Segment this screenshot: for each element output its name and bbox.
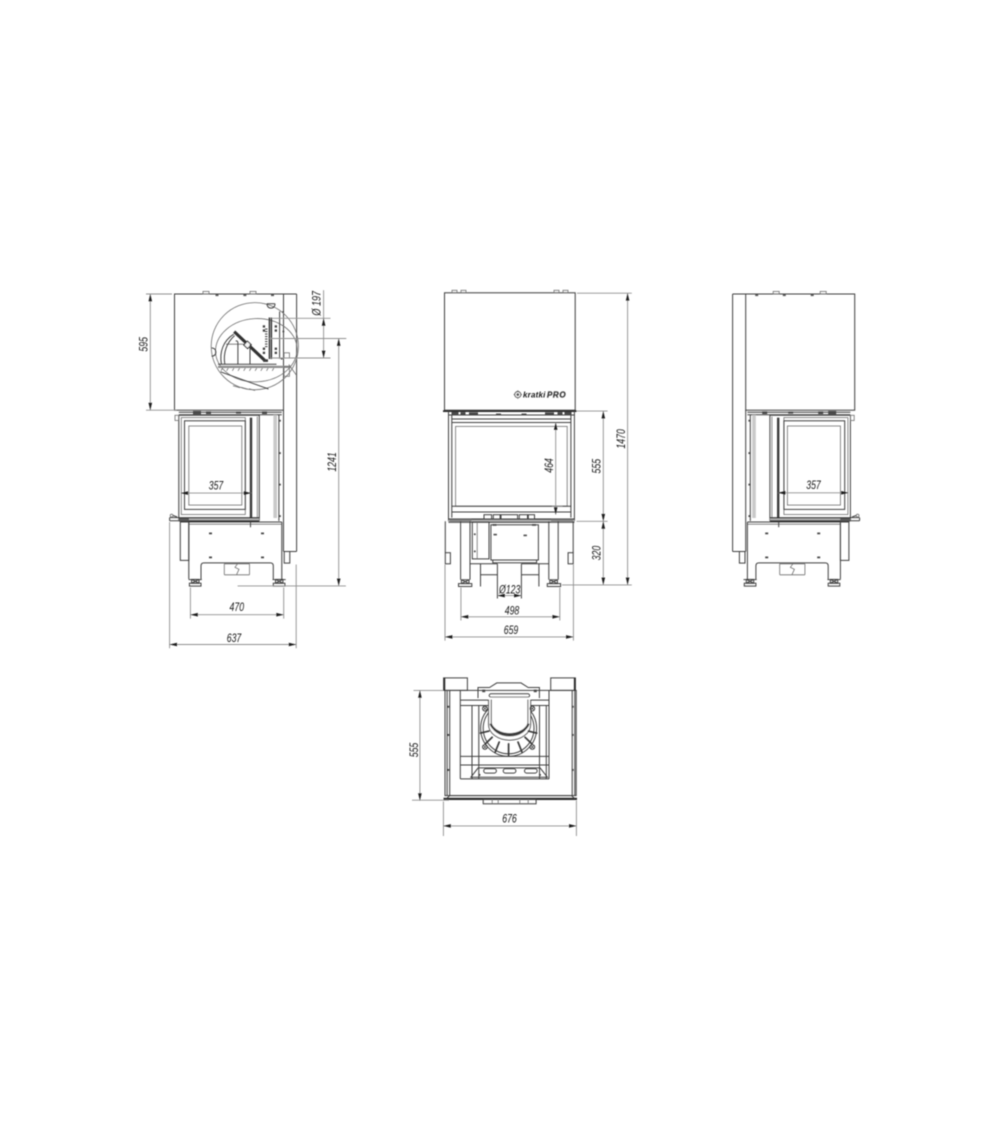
svg-text:555: 555: [591, 459, 604, 474]
svg-text:555: 555: [409, 743, 422, 758]
svg-text:kratki: kratki: [523, 391, 546, 400]
svg-text:464: 464: [544, 458, 557, 473]
svg-text:357: 357: [209, 480, 225, 493]
svg-text:498: 498: [505, 605, 520, 618]
svg-text:357: 357: [806, 480, 822, 493]
svg-text:320: 320: [591, 546, 604, 561]
svg-text:Ø 197: Ø 197: [310, 290, 324, 316]
svg-text:659: 659: [504, 625, 519, 638]
svg-text:Ø123: Ø123: [498, 584, 520, 597]
svg-text:595: 595: [138, 337, 151, 352]
svg-text:1470: 1470: [616, 429, 629, 449]
svg-text:470: 470: [230, 602, 245, 615]
svg-text:637: 637: [227, 633, 243, 646]
svg-text:PRO: PRO: [547, 391, 566, 400]
svg-text:1241: 1241: [327, 452, 340, 471]
svg-text:676: 676: [502, 813, 517, 826]
